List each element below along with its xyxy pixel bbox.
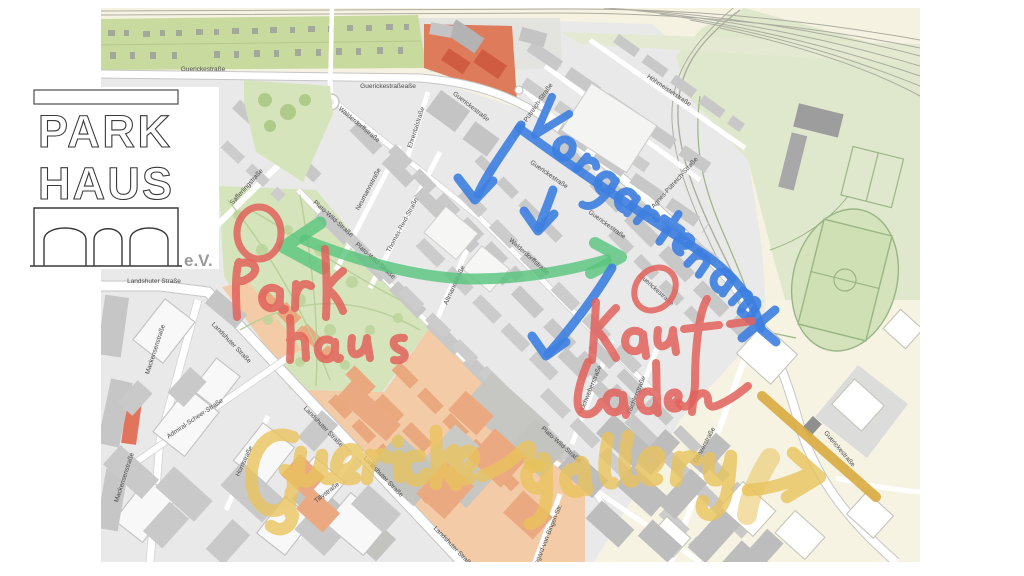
svg-text:HAUS: HAUS bbox=[38, 158, 176, 209]
svg-text:Guerickestraße: Guerickestraße bbox=[181, 66, 226, 73]
svg-text:Guerickestraßeaße: Guerickestraßeaße bbox=[360, 83, 416, 90]
svg-text:e.V.: e.V. bbox=[184, 251, 213, 270]
svg-text:PARK: PARK bbox=[38, 106, 176, 157]
svg-text:Landshuter Straße: Landshuter Straße bbox=[127, 278, 181, 285]
